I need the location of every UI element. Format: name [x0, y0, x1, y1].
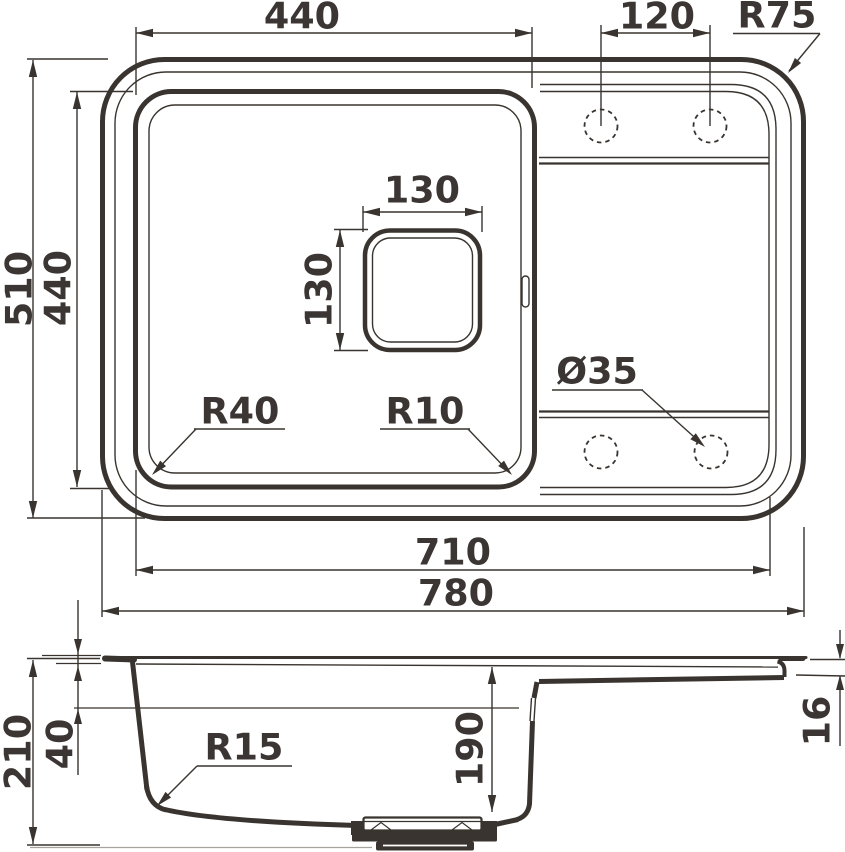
- side-overflow-slot-edge-b: [530, 698, 532, 721]
- top-view-dimensions: [27, 25, 820, 617]
- drain-assembly: [351, 818, 497, 851]
- side-drainboard-surface: [539, 678, 784, 682]
- top-view: [103, 60, 804, 519]
- label-bowl-depth: 440: [37, 250, 80, 326]
- outer-rim-inner-line: [115, 72, 791, 506]
- dim-bowl-radius-leader: [152, 429, 285, 475]
- label-bowl-inner-depth: 190: [449, 711, 492, 787]
- label-overall-width: 780: [418, 572, 494, 615]
- drain-square-inner-line: [373, 238, 473, 342]
- label-outer-radius: R75: [738, 0, 817, 37]
- drain-bevel-right: [452, 823, 472, 831]
- dim-faucet-spacing: [601, 25, 710, 126]
- dim-bottom-radius-leader: [157, 766, 292, 806]
- drawing-canvas: 440 120 R75 510 440 130 130 R40 R10 Ø35 …: [0, 0, 845, 852]
- label-drain-width: 130: [384, 169, 460, 212]
- dim-inner-radius-leader: [380, 429, 512, 475]
- label-bottom-radius: R15: [205, 726, 284, 769]
- side-bowl-bottom-left: [165, 810, 357, 826]
- dim-outer-radius-leader: [733, 34, 820, 74]
- outer-rim-outline: [103, 60, 804, 519]
- label-overall-height: 210: [0, 714, 40, 790]
- basin-outline-outer: [540, 85, 776, 495]
- drain-mid-band: [352, 831, 497, 842]
- side-view-dimensions: [27, 600, 845, 845]
- sink-technical-drawing: 440 120 R75 510 440 130 130 R40 R10 Ø35 …: [0, 0, 845, 852]
- label-bowl-radius: R40: [201, 390, 280, 433]
- side-bowl-right-wall-upper: [534, 682, 537, 698]
- label-rim-step-height: 16: [796, 696, 839, 747]
- side-overflow-slot-edge-a: [534, 698, 536, 721]
- side-view: [30, 658, 806, 851]
- side-bowl-bottom-right: [495, 820, 518, 825]
- label-drain-height: 130: [298, 252, 341, 328]
- label-faucet-diameter: Ø35: [556, 350, 638, 393]
- side-bowl-left-wall: [133, 662, 148, 790]
- side-left-rim-lip: [105, 659, 134, 660]
- dim-faucet-diameter-leader: [552, 390, 705, 447]
- dimension-labels: 440 120 R75 510 440 130 130 R40 R10 Ø35 …: [0, 0, 839, 790]
- drain-square-outline: [365, 231, 480, 351]
- label-overall-depth: 510: [0, 251, 41, 327]
- side-rim-underside-line: [136, 664, 778, 667]
- side-bowl-right-wall-lower: [517, 721, 533, 820]
- label-bowl-width: 440: [264, 0, 340, 38]
- side-right-step: [778, 662, 785, 678]
- label-ledge-depth: 40: [39, 719, 82, 770]
- label-inner-radius: R10: [386, 390, 465, 433]
- overflow-slot: [522, 276, 529, 307]
- faucet-hole-bottom-left: [585, 436, 618, 469]
- label-inner-width: 710: [415, 531, 491, 574]
- label-faucet-spacing: 120: [619, 0, 695, 38]
- drain-bevel-left: [371, 823, 391, 831]
- basin-outline-inner: [540, 92, 769, 488]
